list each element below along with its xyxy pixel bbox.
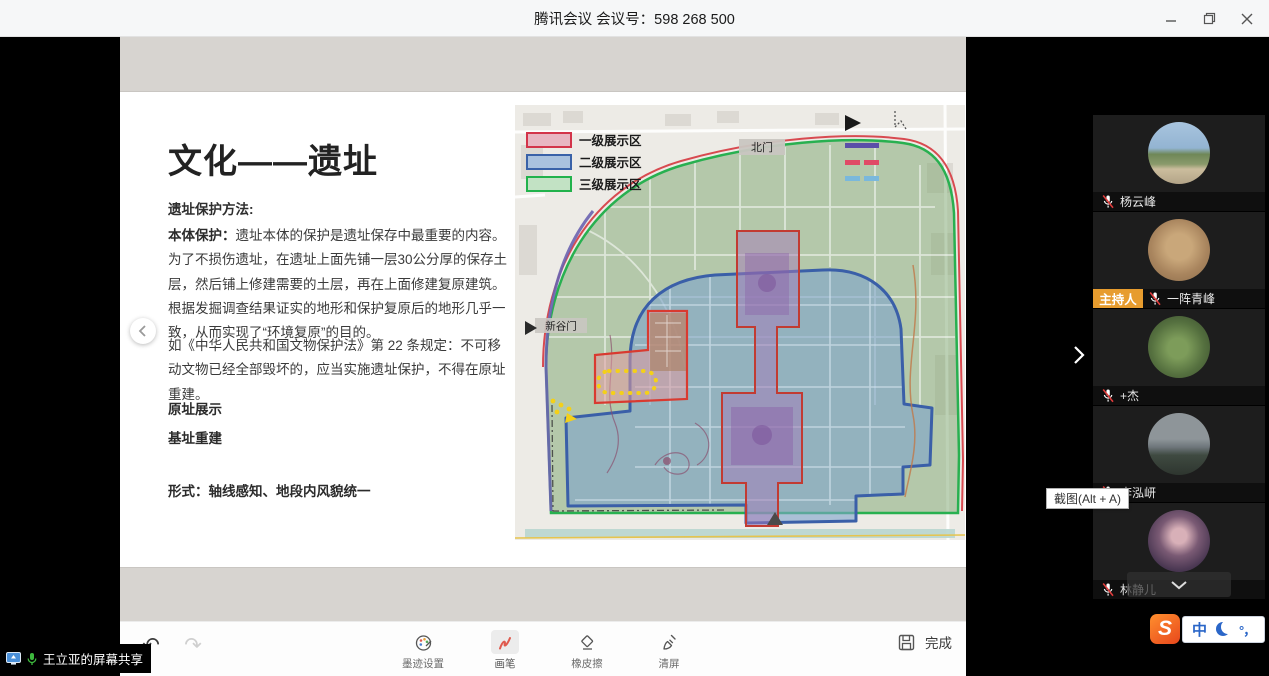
slide-form-line: 形式：轴线感知、地段内风貌统一 — [168, 480, 371, 500]
legend-label-tier1: 一级展示区 — [579, 133, 642, 148]
chevron-left-icon — [137, 324, 149, 338]
save-icon — [897, 633, 916, 652]
previous-slide-edge — [120, 37, 966, 92]
mic-muted-icon — [1148, 291, 1162, 306]
pen-label: 画笔 — [495, 656, 516, 671]
participant-tile[interactable]: 杨云峰 — [1093, 115, 1265, 211]
participant-namebar: +杰 — [1093, 386, 1265, 405]
presenter-label: 王立亚的屏幕共享 — [43, 649, 143, 668]
host-badge: 主持人 — [1093, 289, 1143, 308]
minimize-button[interactable] — [1157, 5, 1185, 33]
slide-subtitle: 遗址保护方法: — [168, 198, 254, 218]
legend-label-tier2: 二级展示区 — [579, 155, 642, 170]
done-label: 完成 — [925, 632, 952, 652]
mic-muted-icon — [1101, 388, 1115, 403]
ime-status-bar: 中 °， — [1182, 616, 1265, 643]
screen-share-icon — [6, 652, 21, 665]
chevron-right-icon — [1072, 342, 1086, 368]
avatar — [1148, 316, 1210, 378]
close-icon — [1241, 13, 1253, 25]
ime-moon-icon[interactable] — [1216, 622, 1230, 636]
paragraph-body: 遗址本体的保护是遗址保存中最重要的内容。为了不损伤遗址，在遗址上面先铺一层30公… — [168, 228, 507, 340]
swatch-blue-dash — [864, 176, 879, 181]
annotation-toolbar: ↶ ↷ 墨迹设置 画笔 — [120, 621, 966, 676]
meeting-window: 腾讯会议 会议号：598 268 500 文化——遗址 遗址保护方法: 本体保护… — [0, 0, 1269, 676]
swatch-red-dash — [864, 160, 879, 165]
prev-slide-button[interactable] — [130, 318, 156, 344]
participant-sidebar: 杨云峰 主持人 一阵青峰 +杰 李泓岍 — [1093, 115, 1265, 600]
window-controls — [1157, 0, 1261, 37]
ime-toolbar: S 中 °， — [1150, 614, 1265, 644]
palette-icon — [409, 630, 437, 654]
north-gate-label: 北门 — [751, 140, 773, 154]
pen-button[interactable]: 画笔 — [464, 626, 546, 671]
legend-label-tier3: 三级展示区 — [579, 177, 642, 192]
eraser-label: 橡皮擦 — [571, 656, 603, 671]
title-bar: 腾讯会议 会议号：598 268 500 — [0, 0, 1269, 37]
slide-item-1: 原址展示 — [168, 398, 222, 418]
screenshot-tooltip: 截图(Alt + A) — [1046, 488, 1129, 509]
tool-group: 墨迹设置 画笔 橡皮擦 清屏 — [382, 626, 710, 671]
paragraph-lead: 本体保护： — [168, 228, 236, 243]
participant-tile[interactable]: 主持人 一阵青峰 — [1093, 212, 1265, 308]
tier1-mound-south — [752, 425, 772, 445]
ink-settings-label: 墨迹设置 — [402, 656, 444, 671]
map-legend: 一级展示区 二级展示区 三级展示区 — [527, 133, 642, 192]
ime-logo[interactable]: S — [1150, 614, 1180, 644]
participant-tile[interactable]: +杰 — [1093, 309, 1265, 405]
restore-button[interactable] — [1195, 5, 1223, 33]
presentation-slide: 文化——遗址 遗址保护方法: 本体保护：遗址本体的保护是遗址保存中最重要的内容。… — [120, 92, 966, 567]
ime-language-toggle[interactable]: 中 — [1192, 619, 1207, 640]
slide-item-2: 基址重建 — [168, 427, 222, 447]
meeting-title: 腾讯会议 会议号：598 268 500 — [0, 0, 1269, 37]
tier1-mound-north — [758, 274, 776, 292]
participant-namebar: 主持人 一阵青峰 — [1093, 289, 1265, 308]
ime-punctuation-toggle[interactable]: °， — [1239, 620, 1255, 639]
collapse-videos-button[interactable] — [1127, 572, 1231, 597]
avatar — [1148, 413, 1210, 475]
close-button[interactable] — [1233, 5, 1261, 33]
avatar — [1148, 510, 1210, 572]
avatar — [1148, 122, 1210, 184]
hide-sidebar-button[interactable] — [1068, 340, 1090, 370]
chevron-down-icon — [1169, 579, 1189, 591]
swatch-purple-line — [845, 143, 879, 148]
clear-screen-label: 清屏 — [659, 656, 680, 671]
avatar — [1148, 219, 1210, 281]
redo-icon: ↷ — [184, 633, 202, 658]
campus-map: 北门 新谷门 一级展示区 二级展示区 — [515, 105, 965, 540]
broom-icon — [655, 630, 683, 654]
eraser-icon — [573, 630, 601, 654]
next-slide-edge — [120, 567, 966, 621]
swatch-blue-dash — [845, 176, 860, 181]
legend-swatch-tier3 — [527, 177, 571, 191]
pen-icon — [491, 630, 519, 654]
garden-dot — [663, 457, 671, 465]
mic-muted-icon — [1101, 194, 1115, 209]
participant-name: 一阵青峰 — [1167, 290, 1215, 307]
slide-paragraph-1: 本体保护：遗址本体的保护是遗址保存中最重要的内容。为了不损伤遗址，在遗址上面先铺… — [168, 224, 513, 345]
legend-swatch-tier2 — [527, 155, 571, 169]
participant-name: +杰 — [1120, 387, 1139, 404]
ink-settings-button[interactable]: 墨迹设置 — [382, 626, 464, 671]
legend-swatch-tier1 — [527, 133, 571, 147]
presenter-overlay: 王立亚的屏幕共享 — [0, 644, 151, 673]
done-button[interactable]: 完成 — [897, 632, 952, 652]
participant-namebar: 杨云峰 — [1093, 192, 1265, 211]
slide-paragraph-2: 如《中华人民共和国文物保护法》第 22 条规定：不可移动文物已经全部毁坏的，应当… — [168, 334, 513, 407]
mic-active-icon — [26, 652, 38, 666]
tier1-west-buildings — [650, 313, 686, 371]
west-gate-label: 新谷门 — [545, 320, 577, 333]
restore-icon — [1203, 12, 1216, 25]
redo-button[interactable]: ↷ — [176, 628, 210, 662]
swatch-red-dash — [845, 160, 860, 165]
eraser-button[interactable]: 橡皮擦 — [546, 626, 628, 671]
clear-screen-button[interactable]: 清屏 — [628, 626, 710, 671]
minimize-icon — [1165, 13, 1177, 25]
slide-title: 文化——遗址 — [168, 134, 378, 183]
participant-tile[interactable]: 林静儿 — [1093, 503, 1265, 599]
participant-name: 杨云峰 — [1120, 193, 1156, 210]
mic-muted-icon — [1101, 582, 1115, 597]
